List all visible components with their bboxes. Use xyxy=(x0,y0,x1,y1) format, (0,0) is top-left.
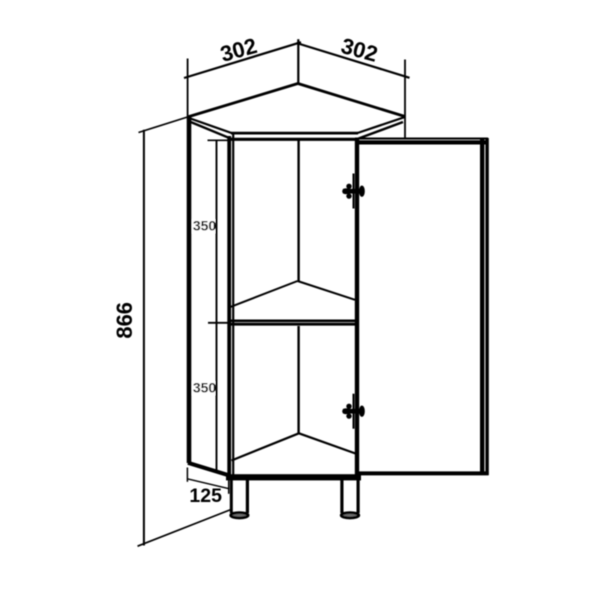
svg-text:866: 866 xyxy=(112,302,137,339)
svg-text:350: 350 xyxy=(193,380,217,396)
svg-text:350: 350 xyxy=(193,218,217,234)
svg-text:125: 125 xyxy=(189,485,222,507)
